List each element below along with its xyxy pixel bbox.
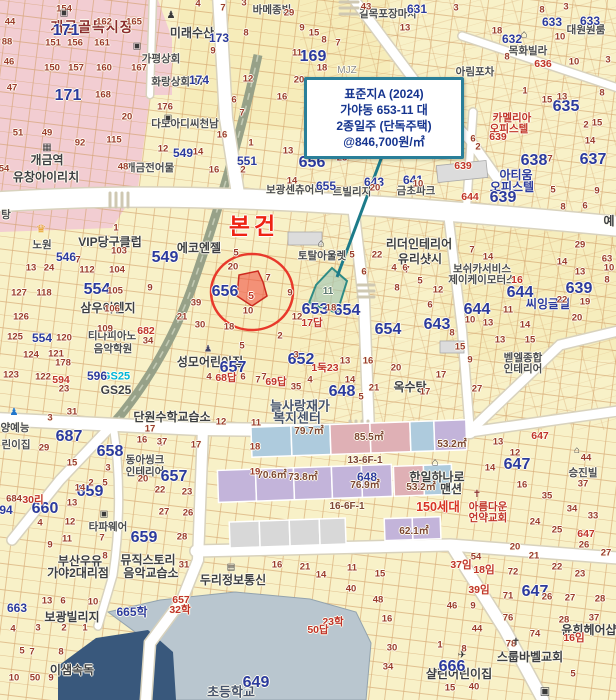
callout-line-zoning: 2종일주 (단독주택) — [311, 118, 457, 134]
map-canvas[interactable]: 개금골목시장미래수산가평상회화랑상회 17바메종빌길목포장마차대원원룸목화빌라아… — [0, 0, 616, 700]
subject-property-label: 본건 — [229, 207, 279, 241]
standard-lot-callout: 표준지A (2024) 가야동 653-11 대 2종일주 (단독주택) @84… — [304, 77, 464, 159]
callout-line-address: 가야동 653-11 대 — [311, 102, 457, 118]
callout-line-type: 표준지A (2024) — [311, 86, 457, 102]
callout-line-price: @846,700원/㎡ — [311, 134, 457, 150]
apartment-buildings — [216, 420, 470, 549]
